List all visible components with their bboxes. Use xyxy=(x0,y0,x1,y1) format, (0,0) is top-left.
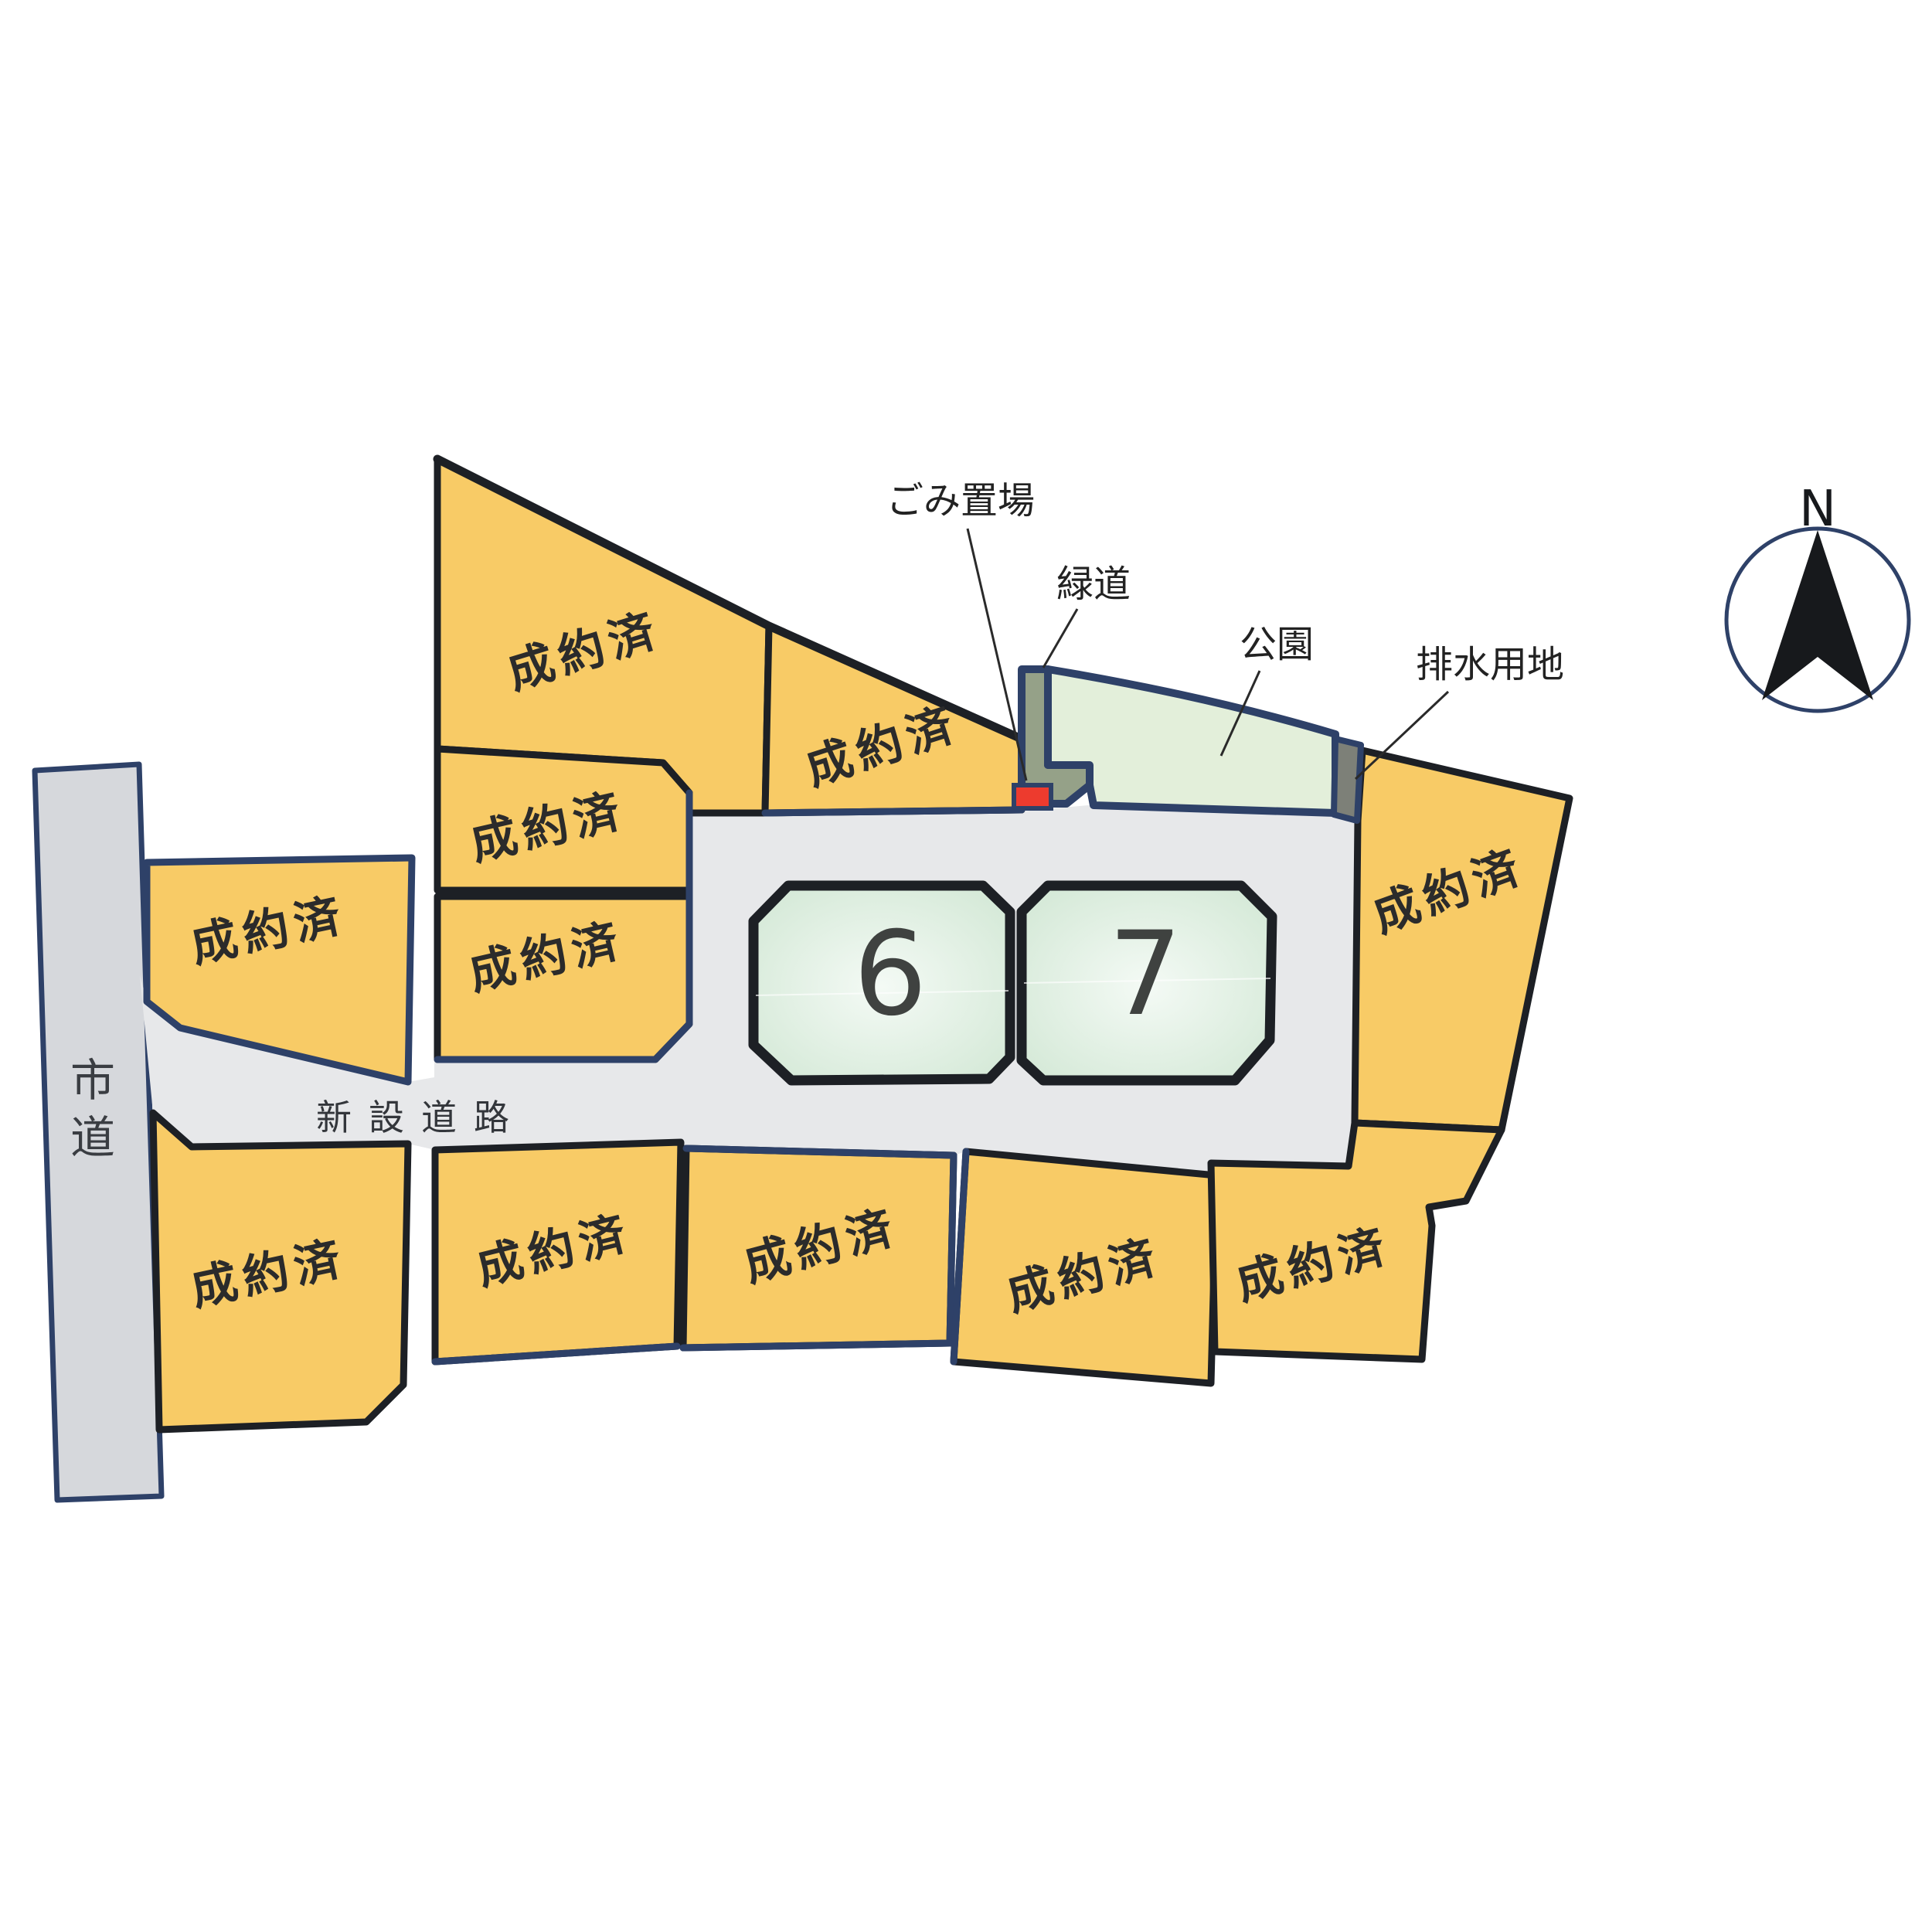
compass: N xyxy=(1726,481,1909,711)
lot-6-number: 6 xyxy=(853,907,927,1042)
subdivision-map: 67成約済成約済成約済成約済成約済成約済成約済成約済成約済成約済成約済市道新設道… xyxy=(0,0,1932,1932)
park-area xyxy=(1048,669,1335,813)
city-road-label-char-0: 市 xyxy=(70,1054,115,1107)
leader-line-1 xyxy=(1043,609,1077,668)
compass-needle-icon xyxy=(1762,530,1873,700)
navy-border-1 xyxy=(765,810,1022,813)
new-road-label: 新設道路 xyxy=(316,1097,526,1138)
plot-map-canvas: 67成約済成約済成約済成約済成約済成約済成約済成約済成約済成約済成約済市道新設道… xyxy=(0,0,1932,1932)
garbage-label: ごみ置場 xyxy=(886,479,1035,522)
navy-border-5 xyxy=(683,1343,950,1348)
greenway-label: 緑道 xyxy=(1056,563,1131,606)
drainage-area xyxy=(1334,739,1361,821)
lot-7-number: 7 xyxy=(1108,907,1182,1042)
drainage-label: 排水用地 xyxy=(1416,643,1564,686)
garbage-marker xyxy=(1014,785,1051,808)
park-label: 公園 xyxy=(1240,623,1314,666)
compass-north-label: N xyxy=(1799,481,1836,538)
city-road-label-char-1: 道 xyxy=(70,1111,115,1164)
